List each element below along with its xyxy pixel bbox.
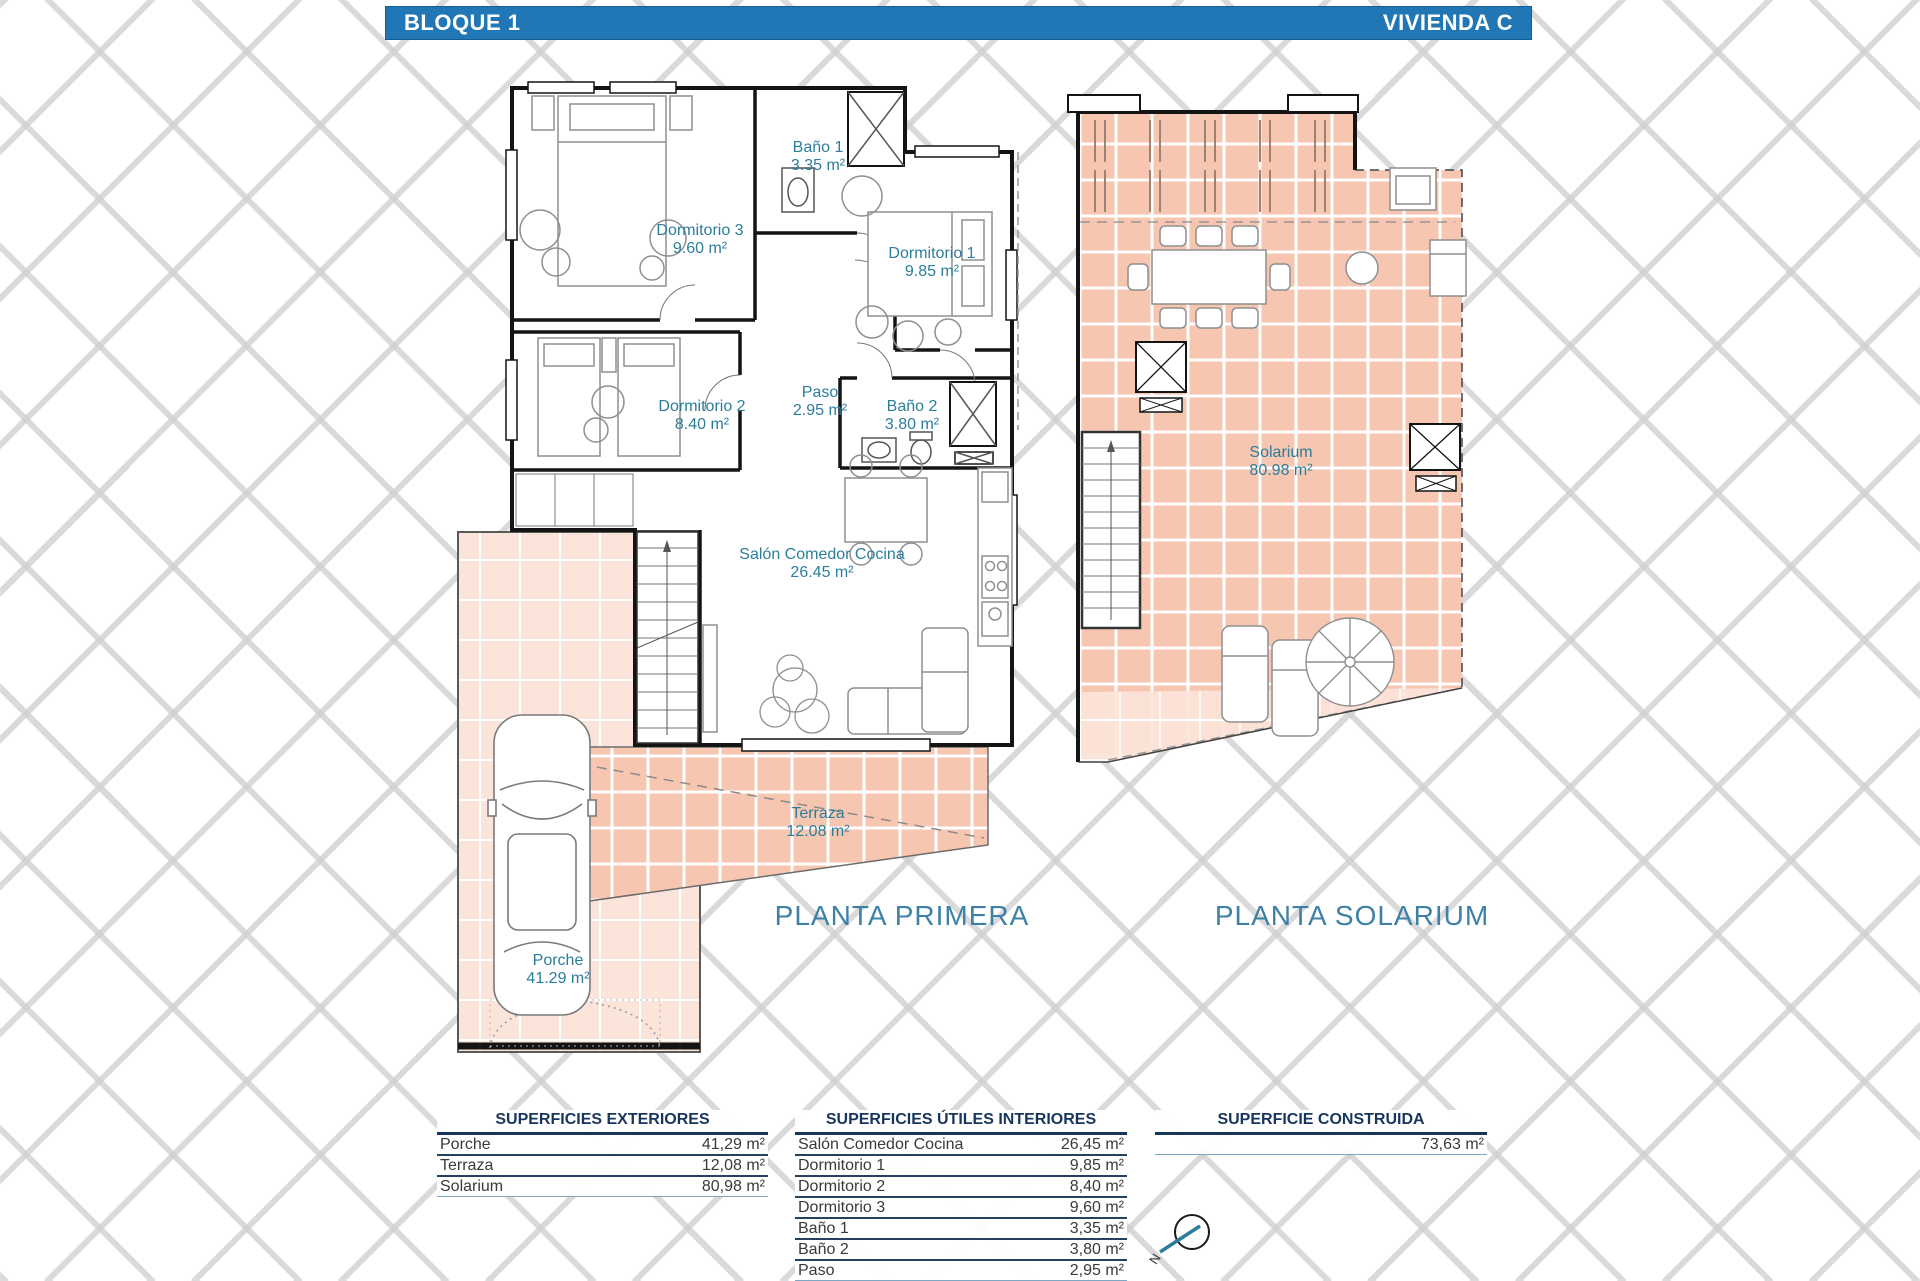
parasol-icon	[1306, 618, 1394, 706]
shaft-icon	[1410, 424, 1460, 491]
room-label-paso: Paso 2.95 m²	[793, 384, 847, 420]
room-label-dormitorio-3: Dormitorio 3 9.60 m²	[656, 222, 743, 258]
table-row: Baño 1 3,35 m²	[795, 1219, 1127, 1240]
table-superficies-exteriores: SUPERFICIES EXTERIORES Porche 41,29 m² T…	[437, 1110, 768, 1197]
floor-plan-drawing	[430, 60, 1510, 1090]
plan-title-solarium: PLANTA SOLARIUM	[1182, 900, 1522, 932]
table-superficie-construida: SUPERFICIE CONSTRUIDA 73,63 m²	[1155, 1110, 1487, 1155]
north-arrow: N	[1148, 1204, 1238, 1270]
table-row: Baño 2 3,80 m²	[795, 1240, 1127, 1261]
tv-unit-icon	[703, 625, 717, 732]
table-title: SUPERFICIE CONSTRUIDA	[1155, 1110, 1487, 1135]
floor-plan-sheet: { "header": { "left": "BLOQUE 1", "right…	[0, 0, 1920, 1280]
block-title: BLOQUE 1	[404, 10, 520, 36]
table-row: Porche 41,29 m²	[437, 1135, 768, 1156]
shaft-icon	[1136, 342, 1186, 412]
table-row: Dormitorio 3 9,60 m²	[795, 1198, 1127, 1219]
table-row: Solarium 80,98 m²	[437, 1177, 768, 1197]
stairs-icon	[1082, 432, 1140, 628]
table-row: Paso 2,95 m²	[795, 1261, 1127, 1281]
table-row: Dormitorio 1 9,85 m²	[795, 1156, 1127, 1177]
table-row: Salón Comedor Cocina 26,45 m²	[795, 1135, 1127, 1156]
table-row: 73,63 m²	[1155, 1135, 1487, 1155]
stairs-icon	[637, 532, 698, 743]
room-label-porche: Porche 41.29 m²	[526, 952, 589, 988]
room-label-dormitorio-2: Dormitorio 2 8.40 m²	[658, 398, 745, 434]
planta-solarium-plan	[1068, 95, 1466, 762]
room-label-salon: Salón Comedor Cocina 26.45 m²	[739, 546, 904, 582]
table-row: Terraza 12,08 m²	[437, 1156, 768, 1177]
room-label-solarium: Solarium 80.98 m²	[1249, 444, 1312, 480]
room-label-bano-1: Baño 1 3.35 m²	[791, 139, 845, 175]
kitchen-counter-icon	[978, 468, 1012, 646]
parapet-block	[1068, 95, 1140, 112]
dwelling-title: VIVIENDA C	[1383, 10, 1513, 36]
table-row: Dormitorio 2 8,40 m²	[795, 1177, 1127, 1198]
table-title: SUPERFICIES ÚTILES INTERIORES	[795, 1110, 1127, 1135]
plan-title-primera: PLANTA PRIMERA	[732, 900, 1072, 932]
table-title: SUPERFICIES EXTERIORES	[437, 1110, 768, 1135]
terraza-floor	[575, 747, 988, 903]
room-label-bano-2: Baño 2 3.80 m²	[885, 398, 939, 434]
table-superficies-interiores: SUPERFICIES ÚTILES INTERIORES Salón Come…	[795, 1110, 1127, 1281]
room-label-terraza: Terraza 12.08 m²	[786, 805, 849, 841]
room-label-dormitorio-1: Dormitorio 1 9.85 m²	[888, 245, 975, 281]
compass-n-label: N	[1148, 1251, 1164, 1267]
title-bar: BLOQUE 1 VIVIENDA C	[385, 6, 1532, 40]
parapet-block	[1288, 95, 1358, 112]
